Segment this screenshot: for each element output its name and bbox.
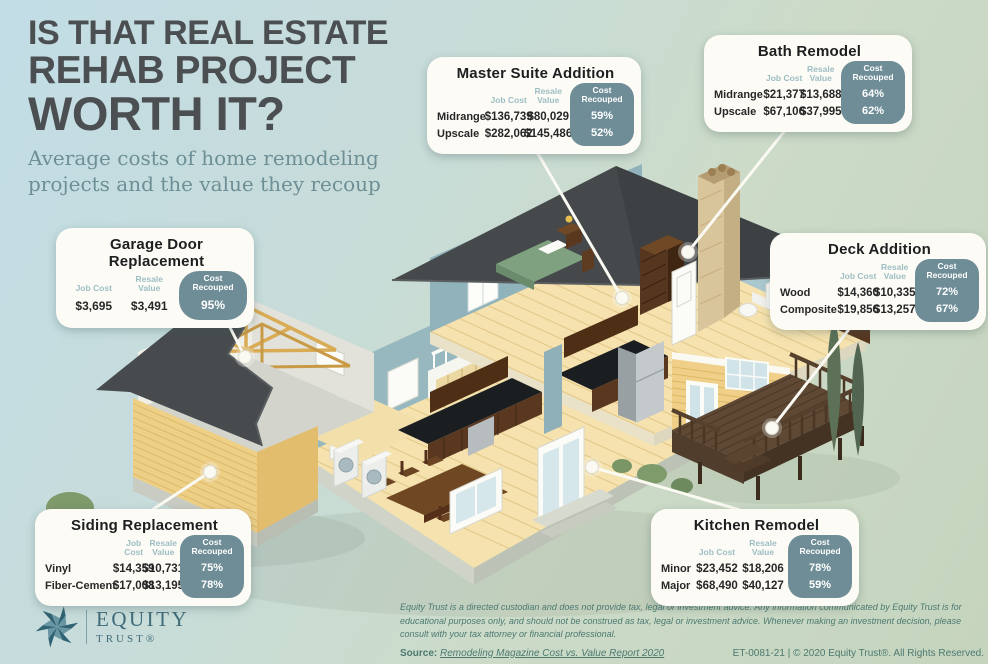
resale-value: $80,029	[528, 108, 568, 125]
column-header-resale-value: Resale Value	[122, 271, 178, 296]
cost-recouped-pill: Cost Recouped 78% 59%	[788, 535, 852, 598]
row-label: Upscale	[437, 125, 486, 142]
job-cost-value: $19,856	[840, 301, 877, 318]
job-cost-value: $23,452	[694, 560, 740, 577]
resale-value: $40,127	[740, 577, 786, 594]
title-line-3: WORTH IT?	[28, 90, 420, 138]
column-header-resale-value: Resale Value	[148, 535, 178, 560]
job-cost-value: $68,490	[694, 577, 740, 594]
footer: Equity Trust is a directed custodian and…	[400, 601, 984, 659]
job-cost-value: $282,062	[489, 125, 529, 142]
column-header-job-cost: Job Cost	[840, 259, 877, 284]
job-cost-value: $67,106	[766, 103, 803, 120]
column-header-resale-value: Resale Value	[740, 535, 786, 560]
cost-recouped-pill: Cost Recouped 75% 78%	[180, 535, 244, 598]
callout-title: Bath Remodel	[714, 43, 905, 60]
pinwheel-star-icon	[34, 604, 80, 650]
cost-recouped-value: 52%	[573, 124, 631, 141]
resale-value: $13,257	[876, 301, 913, 318]
logo-divider	[86, 610, 87, 644]
row-label: Midrange	[437, 108, 486, 125]
column-header-job-cost: Job Cost	[489, 83, 529, 108]
subtitle: Average costs of home remodeling project…	[28, 146, 406, 197]
chimney	[698, 164, 740, 332]
resale-value: $37,995	[802, 103, 839, 120]
row-label: Fiber-Cement	[45, 577, 116, 594]
callout-bath-remodel: Bath Remodel Midrange Upscale Job Cost $…	[704, 35, 912, 132]
column-header-resale-value: Resale Value	[802, 61, 839, 86]
equity-trust-logo: EQUITY TRUST®	[34, 604, 189, 650]
callout-title: Kitchen Remodel	[661, 517, 852, 534]
column-header-job-cost: Job Cost	[119, 535, 149, 560]
title-line-2: REHAB PROJECT	[28, 51, 420, 91]
column-header-job-cost: Job Cost	[66, 271, 122, 296]
row-label: Major	[661, 577, 691, 594]
resale-value: $10,335	[876, 284, 913, 301]
disclaimer-text: Equity Trust is a directed custodian and…	[400, 601, 984, 642]
cost-recouped-value: 75%	[183, 559, 241, 576]
cost-recouped-pill: Cost Recouped 59% 52%	[570, 83, 634, 146]
callout-master-suite-addition: Master Suite Addition Midrange Upscale J…	[427, 57, 641, 154]
job-cost-value: $21,377	[766, 86, 803, 103]
cost-recouped-pill: Cost Recouped 64% 62%	[841, 61, 905, 124]
column-header-cost-recouped: Cost Recouped	[182, 273, 244, 295]
column-header-job-cost: Job Cost	[694, 535, 740, 560]
brand-name-secondary: TRUST®	[96, 633, 189, 645]
column-header-resale-value: Resale Value	[876, 259, 913, 284]
callout-title: Garage Door Replacement	[66, 236, 247, 270]
cost-recouped-value: 95%	[182, 295, 244, 315]
resale-value: $13,195	[148, 577, 178, 594]
cost-recouped-value: 59%	[573, 107, 631, 124]
copyright-text: ET-0081-21 | © 2020 Equity Trust®. All R…	[733, 648, 984, 659]
column-header-cost-recouped: Cost Recouped	[844, 63, 902, 85]
resale-value: $3,491	[122, 296, 178, 316]
column-header-cost-recouped: Cost Recouped	[918, 261, 976, 283]
cost-recouped-pill: Cost Recouped 95%	[179, 271, 247, 320]
job-cost-value: $3,695	[66, 296, 122, 316]
row-label: Upscale	[714, 103, 763, 120]
job-cost-value: $136,739	[489, 108, 529, 125]
title-line-1: IS THAT REAL ESTATE	[28, 16, 420, 51]
cost-recouped-value: 78%	[791, 559, 849, 576]
cost-recouped-value: 67%	[918, 300, 976, 317]
bush	[612, 459, 632, 473]
cost-recouped-value: 72%	[918, 283, 976, 300]
row-label: Minor	[661, 560, 691, 577]
page-title: IS THAT REAL ESTATE REHAB PROJECT WORTH …	[28, 16, 420, 138]
resale-value: $145,486	[528, 125, 568, 142]
cost-recouped-value: 62%	[844, 102, 902, 119]
resale-value: $18,206	[740, 560, 786, 577]
column-header-job-cost: Job Cost	[766, 61, 803, 86]
cost-recouped-value: 78%	[183, 576, 241, 593]
fridge	[618, 347, 636, 422]
callout-title: Deck Addition	[780, 241, 979, 258]
column-header-resale-value: Resale Value	[528, 83, 568, 108]
row-label: Vinyl	[45, 560, 116, 577]
cost-recouped-value: 59%	[791, 576, 849, 593]
source-label: Source:	[400, 648, 437, 659]
callout-kitchen-remodel: Kitchen Remodel Minor Major Job Cost $23…	[651, 509, 859, 606]
cost-recouped-pill: Cost Recouped 72% 67%	[915, 259, 979, 322]
column-header-cost-recouped: Cost Recouped	[573, 85, 631, 107]
toilet	[739, 304, 757, 317]
callout-siding-replacement: Siding Replacement Vinyl Fiber-Cement Jo…	[35, 509, 251, 606]
header: IS THAT REAL ESTATE REHAB PROJECT WORTH …	[28, 16, 420, 198]
source-link[interactable]: Remodeling Magazine Cost vs. Value Repor…	[440, 648, 664, 659]
callout-garage-door-replacement: Garage Door Replacement Job Cost $3,695 …	[56, 228, 254, 328]
callout-title: Siding Replacement	[45, 517, 244, 534]
column-header-cost-recouped: Cost Recouped	[791, 537, 849, 559]
row-label: Composite	[780, 301, 837, 318]
job-cost-value: $14,360	[840, 284, 877, 301]
resale-value: $10,731	[148, 560, 178, 577]
callout-title: Master Suite Addition	[437, 65, 634, 82]
wall-stub	[544, 344, 562, 434]
infographic-canvas: IS THAT REAL ESTATE REHAB PROJECT WORTH …	[0, 0, 988, 664]
row-label: Midrange	[714, 86, 763, 103]
lamp	[566, 216, 573, 223]
resale-value: $13,688	[802, 86, 839, 103]
cost-recouped-value: 64%	[844, 85, 902, 102]
column-header-cost-recouped: Cost Recouped	[183, 537, 241, 559]
row-label: Wood	[780, 284, 837, 301]
callout-deck-addition: Deck Addition Wood Composite Job Cost $1…	[770, 233, 986, 330]
brand-name: EQUITY	[96, 609, 189, 630]
